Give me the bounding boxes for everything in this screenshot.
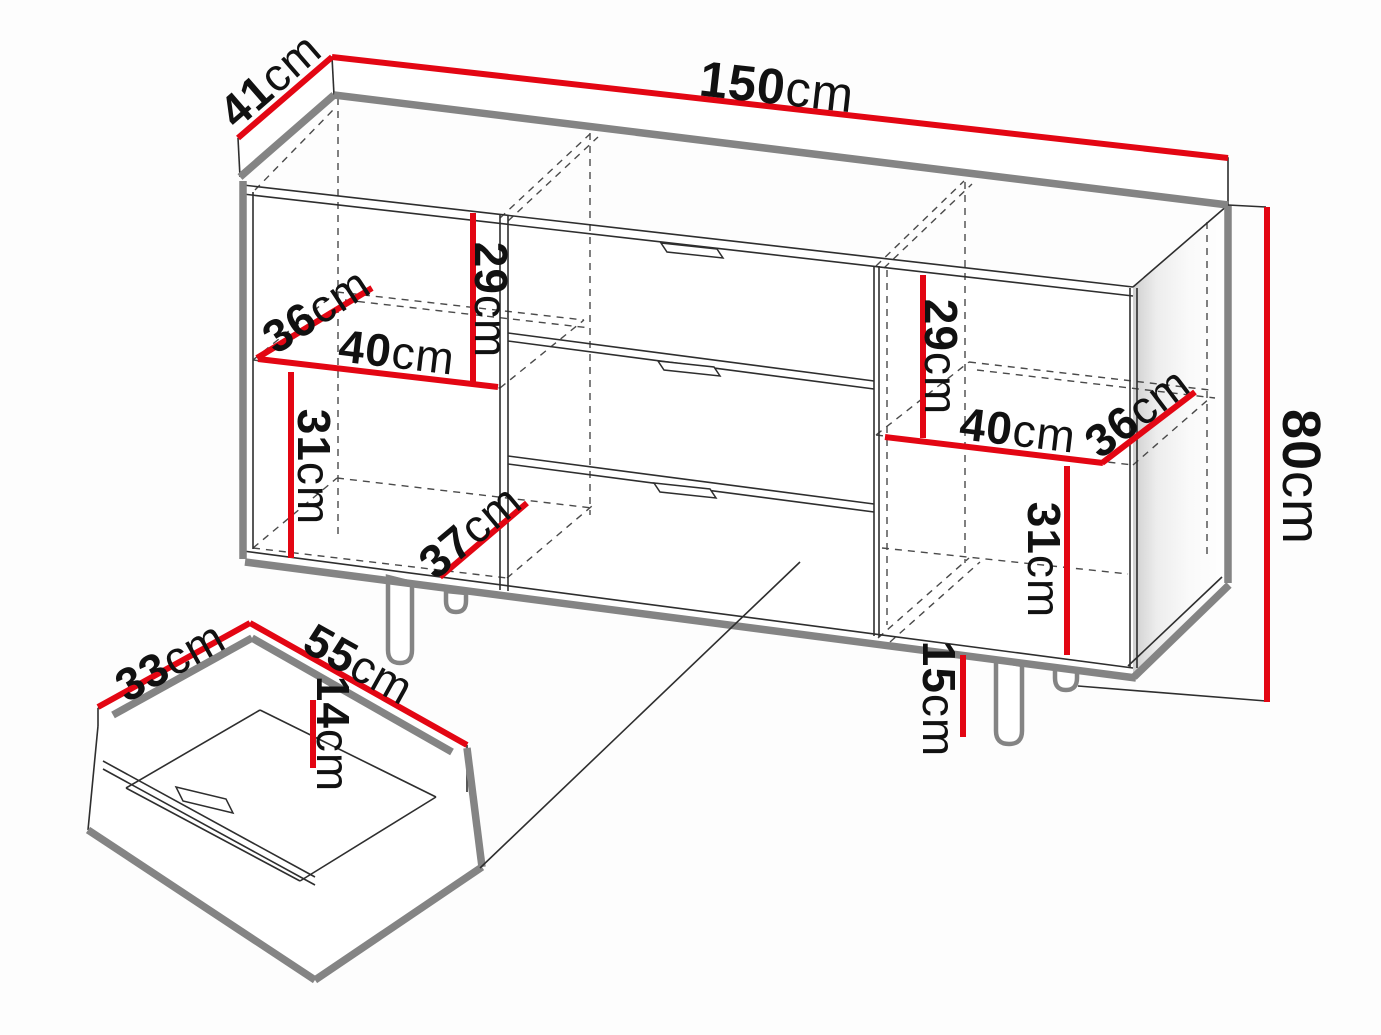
height-extension-bottom xyxy=(1078,686,1266,701)
dim-label-height: 80cm xyxy=(1271,409,1331,545)
cabinet-right-side-face xyxy=(1133,205,1228,677)
height-extension-top xyxy=(1228,205,1266,207)
dim-label-leg-height: 15cm xyxy=(913,641,965,758)
diagram-svg: 150cm 41cm 29cm 36cm 40cm 31cm 37cm 29cm… xyxy=(0,0,1381,1035)
dim-label-drawer-inner-height: 14cm xyxy=(307,676,359,793)
front-left-leg xyxy=(388,577,412,663)
dim-label-right-lower-height: 31cm xyxy=(1018,502,1070,619)
cabinet-drawing xyxy=(238,57,1229,744)
dim-label-right-upper-height: 29cm xyxy=(915,299,967,416)
furniture-dimension-diagram: 150cm 41cm 29cm 36cm 40cm 31cm 37cm 29cm… xyxy=(0,0,1381,1035)
dim-label-left-lower-height: 31cm xyxy=(288,409,340,526)
dim-label-left-upper-height: 29cm xyxy=(465,242,517,359)
front-right-leg xyxy=(996,660,1022,744)
